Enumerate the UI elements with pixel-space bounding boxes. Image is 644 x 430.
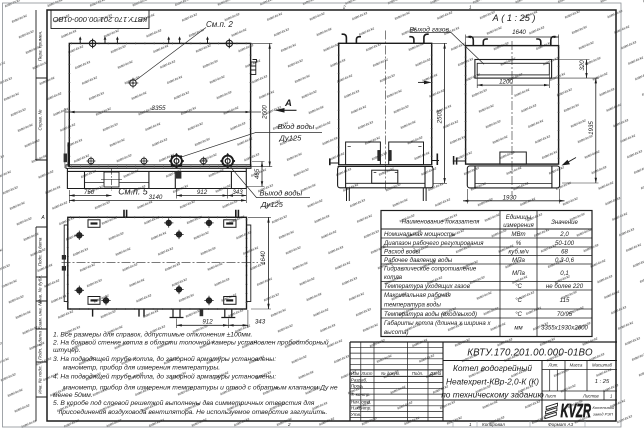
- svg-text:завод РЭП: завод РЭП: [592, 412, 613, 417]
- svg-text:манометр, прибор для измерения: манометр, прибор для измерения температу…: [63, 363, 220, 371]
- svg-text:мм: мм: [514, 325, 523, 332]
- svg-text:по техническому заданию: по техническому заданию: [441, 389, 544, 399]
- svg-text:Лит.: Лит.: [547, 363, 558, 368]
- svg-text:Подп.: Подп.: [412, 371, 423, 376]
- svg-text:Ду125: Ду125: [260, 200, 284, 209]
- svg-text:Диапазон рабочего регулировани: Диапазон рабочего регулирования: [383, 240, 484, 247]
- svg-text:Heatexpert-КВр-2,0-К (К): Heatexpert-КВр-2,0-К (К): [446, 377, 539, 387]
- svg-text:А: А: [284, 98, 292, 109]
- svg-text:1 : 25: 1 : 25: [595, 379, 610, 385]
- svg-text:Котел водогрейный: Котел водогрейный: [453, 363, 532, 373]
- svg-text:1935: 1935: [588, 121, 595, 135]
- svg-text:Инв. № подл.: Инв. № подл.: [38, 365, 43, 394]
- svg-text:343: 343: [255, 319, 266, 326]
- svg-text:Температура уходящих газов: Температура уходящих газов: [384, 283, 470, 290]
- svg-text:68: 68: [561, 248, 568, 255]
- svg-text:измерения: измерения: [503, 222, 534, 229]
- svg-text:343: 343: [232, 189, 243, 196]
- svg-text:1640: 1640: [512, 29, 526, 36]
- svg-text:Подп. и дата: Подп. и дата: [38, 331, 43, 360]
- svg-text:№ докум.: № докум.: [381, 371, 400, 376]
- svg-text:манометр, прибор для измерения: манометр, прибор для измерения температу…: [63, 384, 338, 392]
- svg-text:0,3-0,6: 0,3-0,6: [555, 257, 575, 264]
- svg-text:465: 465: [254, 168, 261, 179]
- svg-text:320: 320: [579, 60, 586, 71]
- svg-text:1. Все размеры для справок, до: 1. Все размеры для справок, допустимые о…: [53, 330, 253, 338]
- svg-text:МПа: МПа: [512, 257, 525, 264]
- svg-text:0,1: 0,1: [560, 270, 568, 277]
- svg-text:Лист: Лист: [360, 371, 372, 376]
- svg-text:А ( 1 : 25 ): А ( 1 : 25 ): [492, 13, 536, 23]
- svg-text:Температура воды (вход/выход): Температура воды (вход/выход): [384, 311, 477, 318]
- svg-text:Нач. отд.: Нач. отд.: [351, 400, 372, 405]
- svg-text:Пров.: Пров.: [351, 384, 363, 389]
- svg-text:%: %: [516, 240, 522, 247]
- svg-text:Котельный: Котельный: [593, 405, 616, 410]
- svg-text:2600: 2600: [261, 105, 268, 120]
- svg-text:куб.м/ч: куб.м/ч: [508, 248, 529, 255]
- svg-text:МПа: МПа: [512, 270, 525, 277]
- svg-text:не более 220: не более 220: [546, 283, 584, 290]
- svg-text:912: 912: [197, 189, 208, 196]
- svg-text:КВТУ.170.201.00.000-01ВО: КВТУ.170.201.00.000-01ВО: [467, 347, 593, 358]
- svg-text:Листов: Листов: [582, 394, 599, 399]
- svg-text:присоединения воздуховода вент: присоединения воздуховода вентилятора. Н…: [59, 408, 328, 416]
- svg-text:Утв.: Утв.: [351, 412, 361, 417]
- svg-text:°С: °С: [515, 311, 522, 318]
- svg-text:штуцер.: штуцер.: [53, 347, 81, 354]
- svg-text:Дата: Дата: [429, 371, 442, 376]
- svg-text:См.п. 5: См.п. 5: [118, 187, 148, 197]
- svg-text:котла: котла: [384, 274, 403, 281]
- svg-text:2: 2: [287, 422, 291, 427]
- svg-text:3140: 3140: [149, 194, 163, 201]
- svg-text:Масса: Масса: [570, 363, 583, 368]
- svg-text:2,0: 2,0: [559, 231, 569, 238]
- svg-text:Копировал: Копировал: [482, 422, 505, 427]
- svg-text:высота): высота): [384, 329, 409, 336]
- svg-text:Справ. №: Справ. №: [38, 110, 43, 131]
- svg-text:Инв. № дубл.: Инв. № дубл.: [38, 275, 43, 303]
- svg-text:Номинальная мощность: Номинальная мощность: [384, 231, 455, 238]
- svg-text:1: 1: [469, 422, 472, 427]
- svg-text:2: 2: [342, 5, 346, 10]
- svg-text:Максимальная рабочая: Максимальная рабочая: [384, 292, 451, 299]
- svg-text:менее 50мм.: менее 50мм.: [53, 392, 93, 399]
- svg-text:912: 912: [202, 319, 213, 326]
- svg-text:70/95: 70/95: [557, 311, 573, 318]
- svg-text:Наименование показателя: Наименование показателя: [402, 219, 480, 226]
- svg-text:Гидравлическое сопротивление: Гидравлическое сопротивление: [384, 266, 477, 273]
- svg-text:Единицы: Единицы: [506, 214, 532, 221]
- svg-text:КВТУ.170.201.00.000-01ВО: КВТУ.170.201.00.000-01ВО: [53, 15, 148, 24]
- svg-text:°С: °С: [515, 283, 522, 290]
- svg-text:1640: 1640: [260, 251, 267, 265]
- svg-text:Габариты котла (длинна х ширин: Габариты котла (длинна х ширина х: [384, 320, 491, 327]
- svg-text:Ду125: Ду125: [279, 133, 303, 142]
- svg-text:1200: 1200: [499, 79, 513, 86]
- svg-text:5. В коробе под слоевой решетк: 5. В коробе под слоевой решеткой выполне…: [53, 399, 315, 407]
- svg-text:Н. контр.: Н. контр.: [351, 406, 372, 411]
- svg-text:Разраб.: Разраб.: [351, 378, 368, 383]
- svg-text:°С: °С: [515, 297, 522, 304]
- svg-text:KVZR: KVZR: [561, 400, 592, 421]
- svg-text:Значение: Значение: [551, 219, 578, 226]
- svg-text:Перв. примен.: Перв. примен.: [38, 31, 43, 62]
- svg-text:МВт: МВт: [511, 231, 525, 238]
- svg-text:2505: 2505: [437, 109, 444, 124]
- svg-text:50-100: 50-100: [555, 240, 575, 247]
- svg-text:Выход воды: Выход воды: [260, 189, 303, 198]
- svg-text:А: А: [40, 215, 45, 221]
- svg-text:Лист: Лист: [544, 394, 556, 399]
- svg-text:Рабочее давление воды: Рабочее давление воды: [384, 257, 453, 264]
- svg-text:3355х1930х2600: 3355х1930х2600: [541, 325, 588, 332]
- svg-text:750: 750: [84, 189, 95, 196]
- svg-text:Расход воды: Расход воды: [384, 248, 421, 255]
- svg-text:Т. контр.: Т. контр.: [351, 392, 371, 397]
- svg-text:Подп. и дата: Подп. и дата: [38, 237, 43, 266]
- svg-text:Вход воды: Вход воды: [278, 122, 315, 131]
- svg-text:3355: 3355: [151, 105, 166, 112]
- svg-text:См.п. 2: См.п. 2: [206, 20, 233, 29]
- svg-text:115: 115: [560, 297, 570, 304]
- svg-text:Формат А3: Формат А3: [548, 422, 574, 427]
- svg-text:3. На подводящей трубе котла,: 3. На подводящей трубе котла, до запорно…: [53, 355, 276, 363]
- svg-text:температура воды: температура воды: [384, 302, 441, 309]
- svg-text:Изм: Изм: [351, 371, 359, 376]
- svg-text:4. На подводящей трубе котла,: 4. На подводящей трубе котла, до запорно…: [53, 372, 276, 380]
- svg-text:1930: 1930: [503, 194, 517, 201]
- svg-text:Масштаб: Масштаб: [592, 363, 613, 368]
- svg-text:2. На боковой стенке котла в о: 2. На боковой стенке котла в области топ…: [52, 339, 329, 347]
- svg-text:Взам. инв. №: Взам. инв. №: [38, 301, 43, 329]
